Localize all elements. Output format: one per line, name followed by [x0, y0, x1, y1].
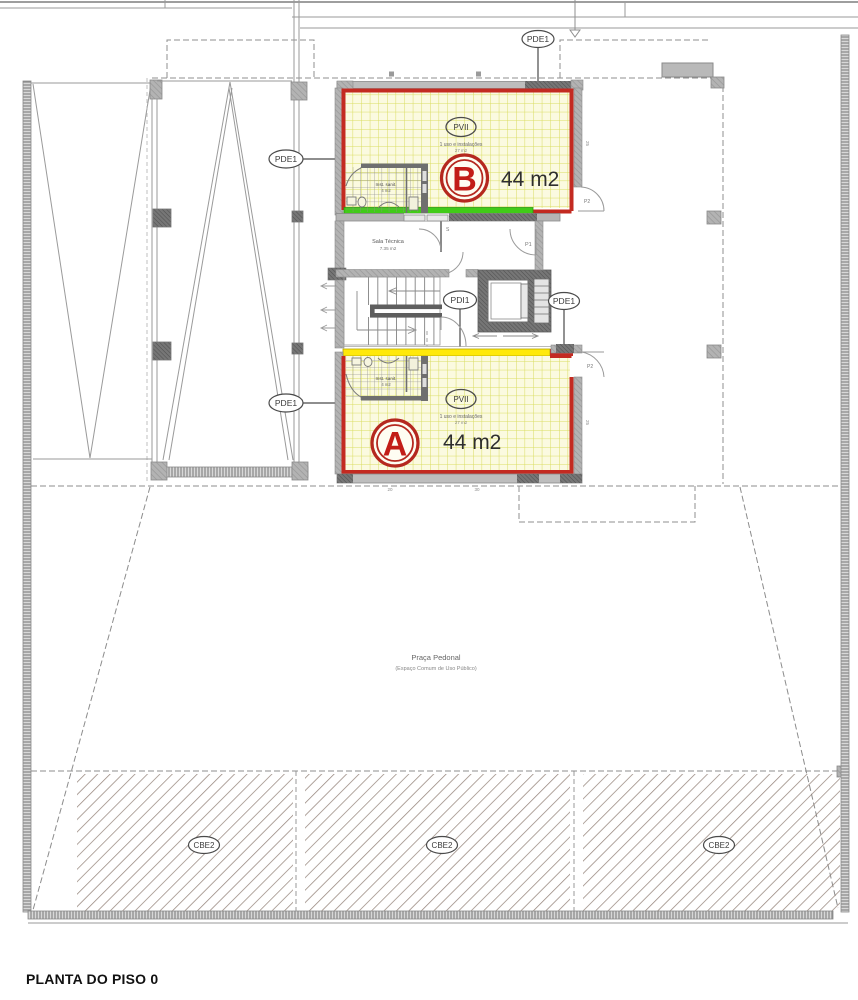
svg-text:Sala Técnica: Sala Técnica — [372, 239, 405, 245]
svg-text:P2: P2 — [587, 364, 593, 370]
svg-text:B: B — [452, 161, 477, 199]
svg-text:(Espaço Comum de Uso Público): (Espaço Comum de Uso Público) — [395, 666, 476, 672]
svg-text:PVII: PVII — [453, 395, 468, 404]
svg-text:30: 30 — [474, 487, 480, 492]
svg-text:Praça Pedonal: Praça Pedonal — [411, 653, 461, 662]
svg-text:44 m2: 44 m2 — [501, 168, 559, 191]
svg-text:P2: P2 — [584, 199, 590, 205]
svg-text:PDE1: PDE1 — [275, 154, 297, 164]
svg-text:PDE1: PDE1 — [553, 296, 575, 306]
svg-text:7.35 m2: 7.35 m2 — [380, 246, 397, 251]
svg-text:CBE2: CBE2 — [432, 841, 453, 850]
svg-text:CBE2: CBE2 — [709, 841, 730, 850]
svg-text:4 m2: 4 m2 — [381, 188, 391, 193]
svg-text:P1: P1 — [525, 242, 532, 248]
svg-text:CBE2: CBE2 — [194, 841, 215, 850]
svg-text:20: 20 — [387, 487, 393, 492]
svg-text:A: A — [383, 426, 408, 464]
svg-text:27 m2: 27 m2 — [455, 148, 468, 153]
svg-text:Inst. sanit.: Inst. sanit. — [376, 376, 397, 381]
svg-text:PVII: PVII — [453, 123, 468, 132]
svg-text:PLANTA DO PISO 0: PLANTA DO PISO 0 — [26, 971, 158, 987]
svg-text:44 m2: 44 m2 — [443, 431, 501, 454]
svg-text:PDI1: PDI1 — [451, 295, 470, 305]
svg-text:Inst. sanit.: Inst. sanit. — [376, 182, 397, 187]
svg-text:4 m2: 4 m2 — [381, 382, 391, 387]
svg-text:PDE1: PDE1 — [527, 34, 549, 44]
svg-text:PDE1: PDE1 — [275, 398, 297, 408]
svg-text:25: 25 — [585, 420, 590, 426]
svg-text:27 m2: 27 m2 — [455, 420, 468, 425]
svg-text:25: 25 — [585, 141, 590, 147]
